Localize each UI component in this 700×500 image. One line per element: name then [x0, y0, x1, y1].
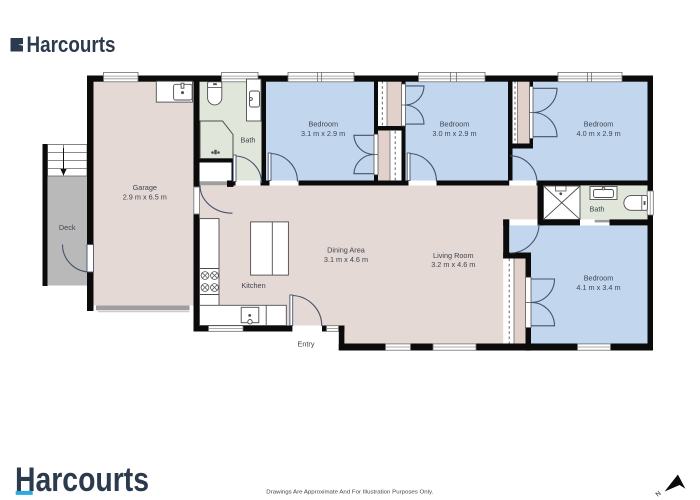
- svg-text:4.1 m x 3.4 m: 4.1 m x 3.4 m: [576, 283, 620, 292]
- svg-text:3.1 m x 2.9 m: 3.1 m x 2.9 m: [301, 129, 345, 138]
- svg-text:Kitchen: Kitchen: [241, 281, 265, 290]
- svg-text:Garage: Garage: [133, 183, 157, 192]
- svg-text:3.1 m x 4.6 m: 3.1 m x 4.6 m: [324, 255, 368, 264]
- svg-text:4.0 m x 2.9 m: 4.0 m x 2.9 m: [576, 129, 620, 138]
- svg-text:Bedroom: Bedroom: [584, 120, 614, 129]
- svg-text:Harcourts: Harcourts: [27, 32, 116, 57]
- svg-text:Bedroom: Bedroom: [584, 273, 614, 282]
- svg-text:Entry: Entry: [297, 339, 314, 348]
- svg-text:Bath: Bath: [240, 136, 255, 145]
- svg-text:Bath: Bath: [589, 205, 604, 214]
- svg-text:Living Room: Living Room: [433, 251, 474, 260]
- svg-text:3.2 m x 4.6 m: 3.2 m x 4.6 m: [431, 260, 475, 269]
- svg-text:2.9 m x 6.5 m: 2.9 m x 6.5 m: [123, 192, 167, 201]
- svg-text:Bedroom: Bedroom: [440, 120, 470, 129]
- svg-text:Bedroom: Bedroom: [308, 120, 338, 129]
- svg-text:Drawings Are Approximate And F: Drawings Are Approximate And For Illustr…: [266, 489, 433, 495]
- svg-text:Dining Area: Dining Area: [327, 246, 366, 255]
- svg-text:Harcourts: Harcourts: [15, 461, 149, 499]
- svg-text:Deck: Deck: [59, 223, 76, 232]
- svg-text:3.0 m x 2.9 m: 3.0 m x 2.9 m: [432, 129, 476, 138]
